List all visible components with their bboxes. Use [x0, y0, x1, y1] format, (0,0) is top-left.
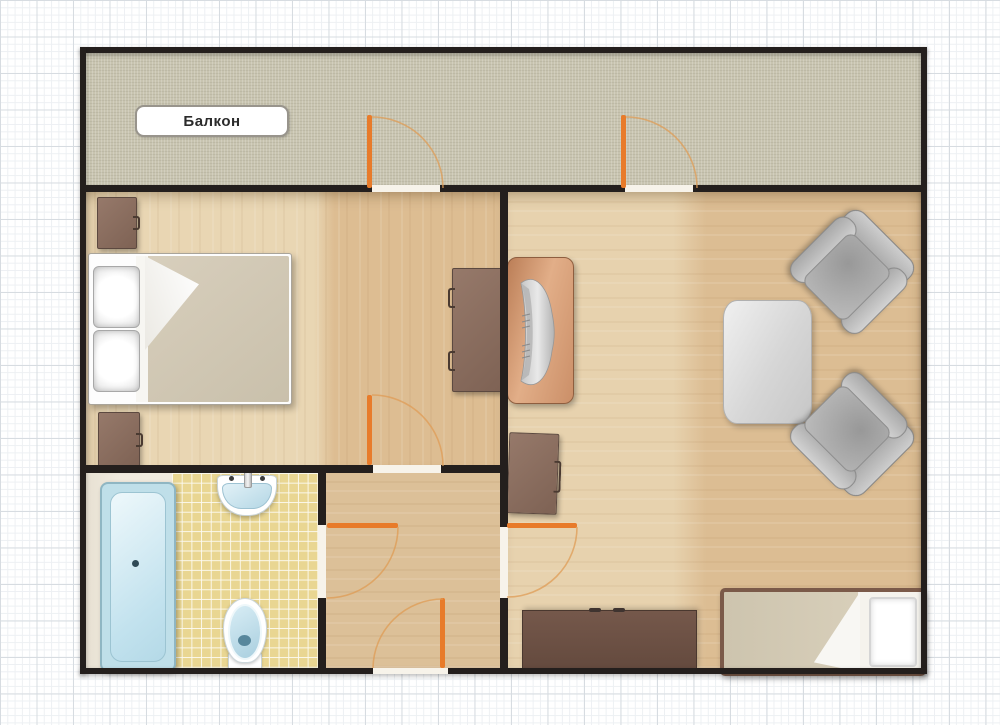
piano[interactable] [507, 257, 574, 404]
nightstand-top[interactable] [97, 197, 137, 249]
desk[interactable] [452, 268, 504, 392]
toilet-seat [228, 604, 262, 660]
opening-balcony-right [625, 185, 693, 192]
bathtub-drain [132, 560, 139, 567]
toilet[interactable] [222, 598, 268, 670]
entry-hall-floor [326, 473, 500, 668]
balcony-door-right[interactable] [621, 115, 626, 188]
nightstand-handle [133, 216, 140, 230]
single-bed[interactable] [720, 588, 926, 676]
desk-handle [448, 288, 455, 308]
balcony-door-left[interactable] [367, 115, 372, 188]
wall-bedroom-bottom [86, 465, 508, 473]
nightstand-handle [136, 433, 143, 447]
wash-basin[interactable] [217, 471, 277, 516]
faucet-handle [260, 476, 265, 481]
pillow [93, 266, 140, 328]
bathroom-door[interactable] [327, 523, 398, 528]
wall-exterior-bottom [80, 668, 927, 674]
bedroom-hall-door[interactable] [367, 395, 372, 465]
pillow [93, 330, 140, 392]
opening-bathroom [318, 525, 326, 598]
single-bed-pillow [869, 597, 917, 667]
wall-exterior-top [80, 47, 927, 53]
sideboard-handle [613, 608, 625, 612]
living-room-door[interactable] [507, 523, 577, 528]
opening-bedroom-hall [373, 465, 441, 473]
faucet-handle [229, 476, 234, 481]
desk-handle [448, 351, 455, 371]
entry-door[interactable] [440, 598, 445, 668]
sideboard-handle [589, 608, 601, 612]
faucet-icon [244, 471, 252, 488]
bathtub-basin [110, 492, 166, 662]
wall-exterior-right [921, 47, 927, 674]
grid-paper-canvas: Балкон [0, 0, 1000, 725]
balcony-label[interactable]: Балкон [135, 105, 289, 137]
balcony-label-text: Балкон [183, 113, 240, 130]
floor-plan: Балкон [80, 47, 927, 674]
opening-entry [373, 668, 448, 674]
coffee-table[interactable] [723, 300, 812, 424]
piano-open-lid [508, 258, 573, 403]
wall-exterior-left [80, 47, 86, 674]
opening-balcony-left [372, 185, 440, 192]
opening-living-room [500, 527, 508, 598]
single-bed-sheet-fold [812, 592, 860, 672]
double-bed[interactable] [88, 253, 292, 405]
nightstand-bottom[interactable] [98, 412, 140, 467]
toilet-drain [238, 635, 251, 646]
cabinet-handle [553, 461, 561, 493]
sideboard[interactable] [522, 610, 697, 670]
bathtub[interactable] [100, 482, 176, 672]
bedside-cabinet[interactable] [507, 432, 560, 515]
